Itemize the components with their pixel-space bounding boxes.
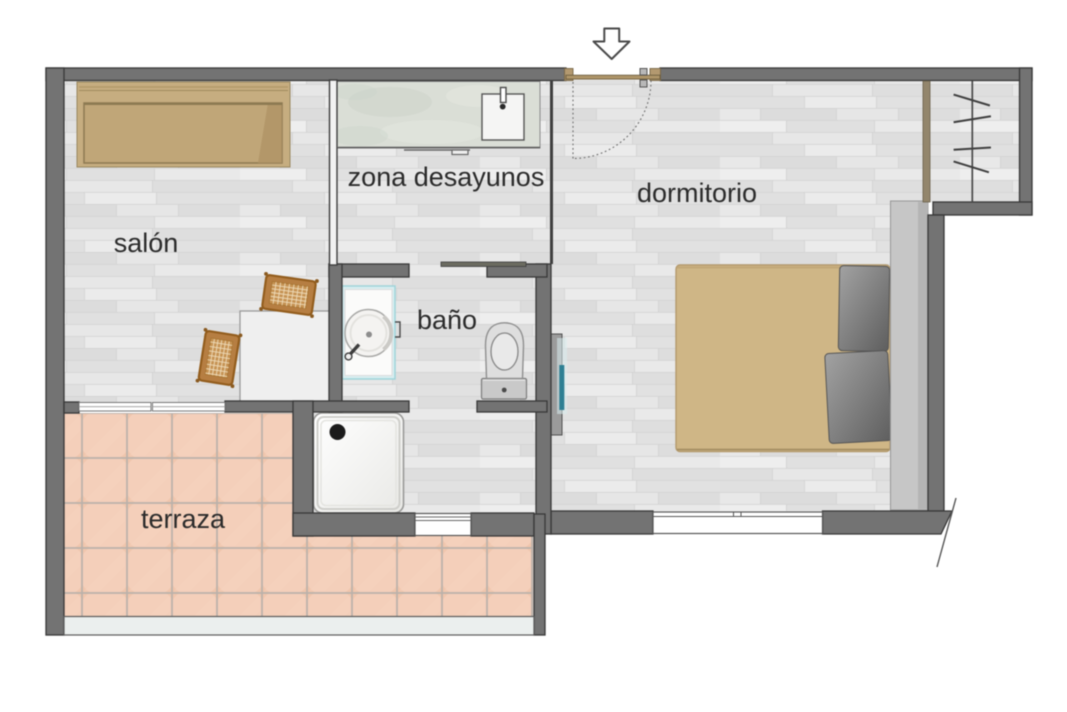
- svg-text:salón: salón: [114, 228, 179, 258]
- svg-text:terraza: terraza: [141, 504, 226, 534]
- svg-text:zona desayunos: zona desayunos: [348, 162, 545, 192]
- svg-text:dormitorio: dormitorio: [637, 178, 757, 208]
- svg-text:baño: baño: [417, 305, 477, 335]
